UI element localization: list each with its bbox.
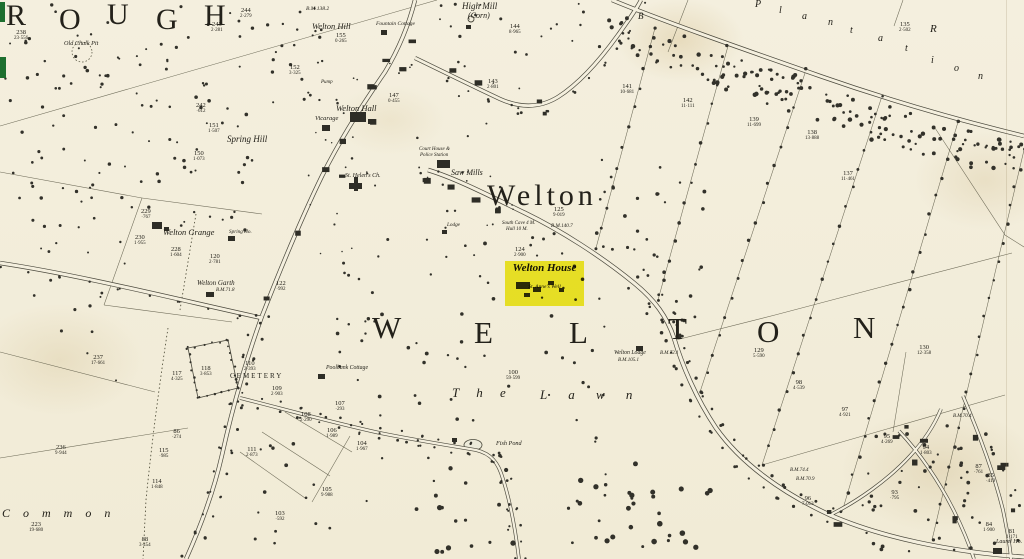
map-label: Fish Pond: [496, 441, 522, 447]
map-label: High Mill: [462, 2, 497, 11]
map-label: Police Station: [420, 153, 448, 158]
parcel-number: 1501·073: [193, 150, 205, 163]
parcel-number: 1523·325: [289, 64, 301, 77]
map-label: G: [156, 5, 178, 35]
map-label: (Corn): [468, 12, 490, 20]
parcel-number: 1550·265: [335, 32, 347, 45]
parcel-number: 1082·290: [300, 411, 312, 424]
map-label: L: [569, 317, 588, 348]
map-label: Pump: [321, 80, 333, 85]
map-label: Welton Hill: [312, 22, 351, 31]
parcel-number: 13711·461: [841, 170, 855, 183]
parcel-number: 1242·900: [514, 246, 526, 259]
map-label: L a w n: [540, 388, 641, 401]
parcel-number: 954·269: [881, 433, 893, 446]
map-label: l: [779, 6, 782, 16]
parcel-number: 10059·599: [506, 369, 520, 382]
map-label: Old Chalk Pit: [64, 41, 98, 47]
parcel-number: 87·761: [974, 463, 983, 476]
parcel-number: 1295·590: [753, 347, 765, 360]
map-label: U: [107, 0, 129, 30]
parcel-number: 242·612: [196, 102, 206, 115]
parcel-number: 1470·455: [388, 92, 400, 105]
parcel-number: 2301·955: [134, 234, 146, 247]
map-label: N: [853, 312, 875, 343]
map-label: n: [828, 18, 833, 28]
map-label: Hull 10 M.: [506, 227, 528, 232]
map-label: B.M.74.4: [790, 468, 808, 473]
parcel-number: 1448·965: [509, 23, 521, 36]
map-label: T: [668, 313, 687, 344]
map-label: R: [6, 1, 26, 31]
parcel-number: 967·013: [802, 495, 814, 508]
map-label: O: [757, 316, 779, 347]
map-label: Poolbank Cottage: [326, 366, 368, 372]
parcel-number: 1141·848: [151, 478, 163, 491]
map-label: i: [931, 56, 934, 66]
parcel-number: 23823·556: [14, 29, 28, 42]
map-label: Welton Garth: [197, 280, 235, 287]
map-label: o: [954, 64, 959, 74]
map-label: Lodge: [447, 223, 460, 228]
parcel-number: 2281·604: [170, 246, 182, 259]
map-label: a: [878, 34, 883, 44]
parcel-number: 1041·967: [356, 440, 368, 453]
map-label: Fountain Cottage: [376, 22, 415, 28]
parcel-number: 1102·393: [244, 360, 256, 373]
map-label: B.M.72.1: [660, 351, 678, 356]
parcel-number: 103·592: [275, 510, 285, 523]
map-label: W: [372, 312, 401, 343]
map-label: C o m m o n: [2, 507, 115, 519]
parcel-number: 1183·853: [200, 365, 212, 378]
parcel-number: 1202·781: [209, 253, 221, 266]
map-label: Welton: [487, 181, 597, 211]
parcel-number: 13813·888: [805, 129, 819, 142]
parcel-number: 14211·111: [681, 97, 695, 110]
map-label: Court House &: [419, 147, 450, 152]
parcel-number: 93·795: [890, 489, 899, 502]
map-label: E: [474, 317, 493, 348]
parcel-number: 85·419: [986, 472, 995, 485]
parcel-number: 1511·507: [208, 122, 220, 135]
parcel-number: 1059·988: [321, 486, 333, 499]
map-labels: ROUGHWeltonWELTONT h eL a w nC o m m o n…: [0, 0, 1024, 559]
map-label: B: [638, 12, 644, 21]
map-label: Welton Grange: [163, 228, 214, 237]
map-label: P: [755, 0, 761, 10]
parcel-number: 984·539: [793, 379, 805, 392]
parcel-number: 941·803: [920, 444, 932, 457]
parcel-number: 811·171: [1006, 528, 1018, 541]
parcel-number: 13911·699: [747, 116, 761, 129]
parcel-number: 122·992: [276, 280, 286, 293]
map-label: O: [59, 5, 81, 35]
parcel-number: 22319·680: [29, 521, 43, 534]
map-label: Spring Hill: [227, 135, 267, 144]
map-label: Vicarage: [315, 116, 338, 123]
map-label: Welton Lodge: [614, 351, 646, 357]
parcel-number: 229·767: [141, 208, 151, 221]
map-label: Spring Ho.: [229, 230, 252, 235]
parcel-number: 1352·502: [899, 21, 911, 34]
parcel-number: 107·293: [335, 400, 345, 413]
parcel-number: 115·985: [159, 447, 169, 460]
parcel-number: 1112·873: [246, 446, 258, 459]
parcel-number: 1432·801: [487, 78, 499, 91]
map-label: B.M.138.2: [306, 7, 329, 13]
map-label: CEMETERY: [230, 373, 283, 380]
parcel-number: 1259·019: [553, 206, 565, 219]
map-label: B.M.70.9: [796, 477, 814, 482]
parcel-number: 883·454: [139, 536, 151, 549]
parcel-number: 2442·279: [240, 7, 252, 20]
map-label: n: [978, 72, 983, 82]
map-label: t: [905, 44, 908, 54]
map-label: Saw Mills: [451, 169, 483, 177]
parcel-number: 2369·944: [55, 444, 67, 457]
map-label: t: [850, 26, 853, 36]
parcel-number: 2432·281: [211, 21, 223, 34]
map-label: South Cave 4 M.: [502, 221, 535, 226]
parcel-number: 841·900: [983, 521, 995, 534]
parcel-number: 14110·681: [620, 83, 634, 96]
map-label: Welton Hall: [336, 104, 377, 113]
parcel-number: 23717·661: [91, 354, 105, 367]
map-label: T h e: [452, 386, 513, 399]
map-label: R: [930, 24, 937, 35]
map-label: a: [802, 12, 807, 22]
parcel-number: 1174·325: [171, 370, 183, 383]
map-label: St. Helen's Ch.: [345, 173, 381, 179]
parcel-number: 86·274: [172, 428, 181, 441]
parcel-number: 1061·989: [326, 427, 338, 440]
map-label: B.M.70.4: [953, 414, 971, 419]
parcel-number: 13012·358: [917, 344, 931, 357]
map-canvas[interactable]: Welton House St. Anne's Well ROUGHWelton…: [0, 0, 1024, 559]
map-label: B.M.105.1: [618, 358, 639, 363]
parcel-number: 974·921: [839, 406, 851, 419]
map-label: B.M.140.7: [551, 224, 573, 229]
map-label: B.M.71.8: [216, 288, 234, 293]
parcel-number: 1092·903: [271, 385, 283, 398]
